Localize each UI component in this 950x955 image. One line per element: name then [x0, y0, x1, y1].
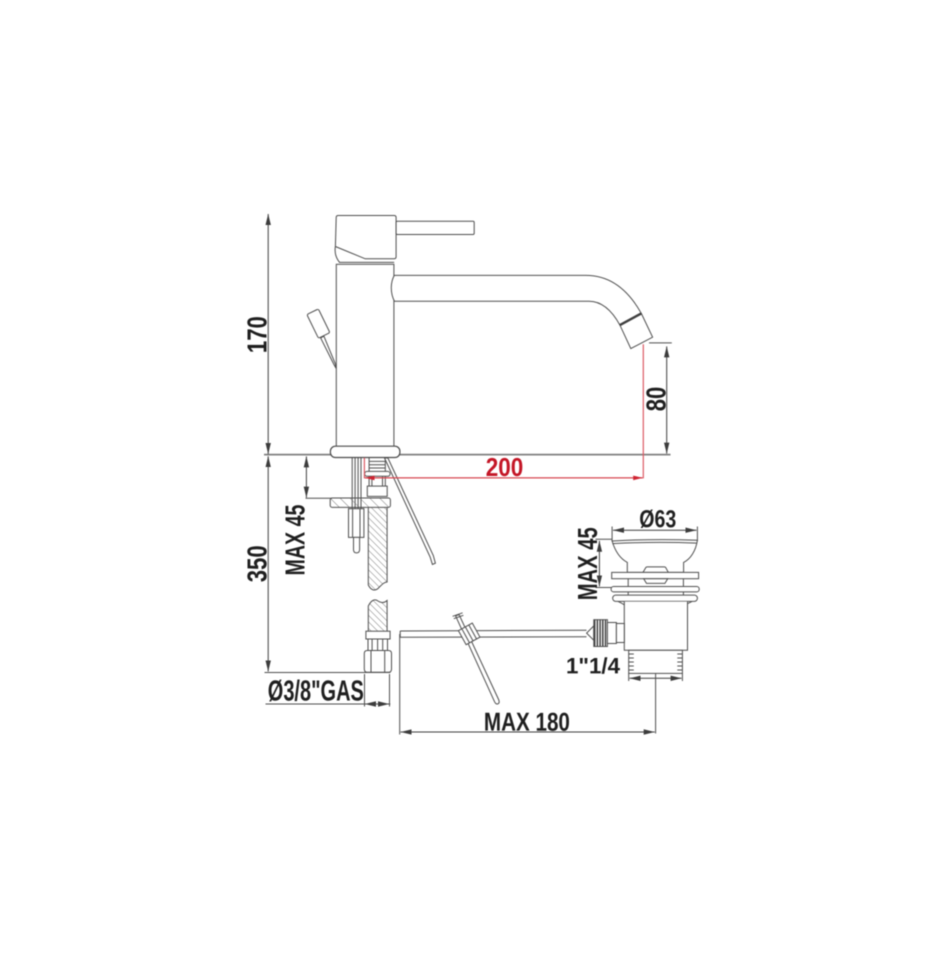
svg-text:MAX 180: MAX 180	[484, 707, 570, 737]
svg-text:80: 80	[640, 387, 671, 412]
svg-text:MAX 45: MAX 45	[280, 505, 311, 576]
svg-text:MAX 45: MAX 45	[572, 527, 603, 600]
svg-text:Ø63: Ø63	[639, 506, 676, 533]
svg-text:170: 170	[241, 316, 272, 353]
svg-text:1"1/4: 1"1/4	[566, 653, 621, 678]
svg-text:200: 200	[486, 452, 524, 482]
svg-text:350: 350	[242, 545, 273, 582]
svg-text:Ø3/8"GAS: Ø3/8"GAS	[268, 675, 364, 707]
